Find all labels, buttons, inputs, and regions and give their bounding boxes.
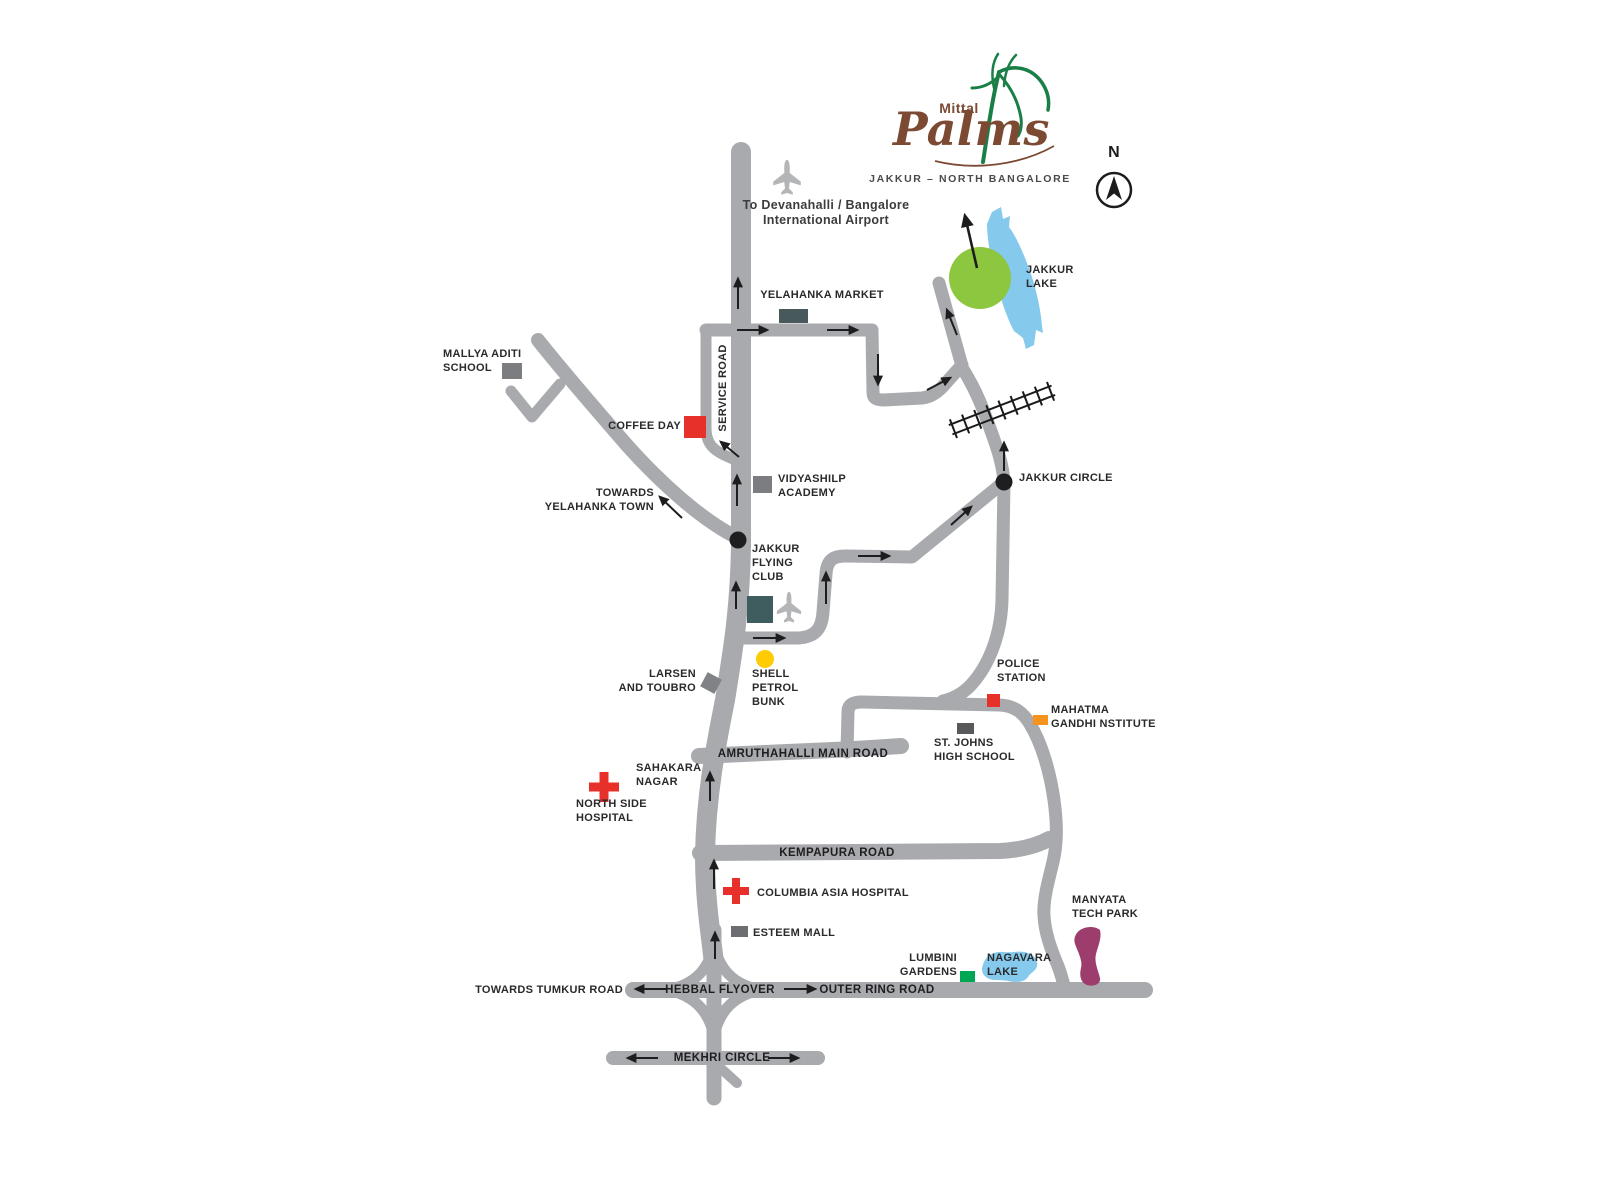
road-school-spur bbox=[511, 384, 560, 417]
flying-club-plane-icon bbox=[777, 592, 801, 623]
label-st-johns: ST. JOHNS HIGH SCHOOL bbox=[934, 736, 1015, 764]
label-lumbini-gardens: LUMBINI GARDENS bbox=[900, 951, 957, 979]
road-main-north bbox=[705, 152, 741, 965]
vidyashilp-academy-marker bbox=[753, 476, 772, 493]
airport-plane-icon bbox=[773, 160, 801, 195]
label-towards-yelahanka: TOWARDS YELAHANKA TOWN bbox=[545, 486, 654, 514]
map-graphics bbox=[0, 0, 1600, 1200]
police-station-marker bbox=[987, 694, 1000, 707]
map-canvas: Mittal Palms JAKKUR – NORTH BANGALORE N … bbox=[0, 0, 1600, 1200]
label-police-station: POLICE STATION bbox=[997, 657, 1046, 685]
lumbini-gardens-marker bbox=[960, 971, 975, 982]
label-manyata-tech-park: MANYATA TECH PARK bbox=[1072, 893, 1138, 921]
coffee-day-marker bbox=[684, 416, 706, 438]
label-mahatma-gandhi: MAHATMA GANDHI NSTITUTE bbox=[1051, 703, 1156, 731]
label-hebbal-flyover: HEBBAL FLYOVER bbox=[665, 983, 775, 997]
label-esteem-mall: ESTEEM MALL bbox=[753, 926, 835, 940]
project-site-circle bbox=[949, 247, 1011, 309]
label-larsen-toubro: LARSEN AND TOUBRO bbox=[619, 667, 696, 695]
logo-script-text: Palms bbox=[893, 106, 1050, 152]
jakkur-circle-dot bbox=[996, 474, 1013, 491]
railway-crossing-icon bbox=[947, 381, 1057, 439]
label-coffee-day: COFFEE DAY bbox=[608, 419, 681, 433]
label-shell-petrol-bunk: SHELL PETROL BUNK bbox=[752, 667, 798, 709]
label-nagavara-lake: NAGAVARA LAKE bbox=[987, 951, 1051, 979]
label-jakkur-flying-club: JAKKUR FLYING CLUB bbox=[752, 542, 800, 584]
label-vidyashilp-academy: VIDYASHILP ACADEMY bbox=[778, 472, 846, 500]
compass-icon bbox=[1097, 173, 1131, 207]
yelahanka-market-marker bbox=[779, 309, 808, 323]
label-amruthahalli-road: AMRUTHAHALLI MAIN ROAD bbox=[718, 747, 888, 761]
manyata-tech-park-shape bbox=[1074, 927, 1100, 986]
esteem-mall-marker bbox=[731, 926, 748, 937]
label-outer-ring-road: OUTER RING ROAD bbox=[819, 983, 934, 997]
label-jakkur-lake: JAKKUR LAKE bbox=[1026, 263, 1074, 291]
logo-tagline: JAKKUR – NORTH BANGALORE bbox=[869, 172, 1071, 186]
label-yelahanka-market: YELAHANKA MARKET bbox=[760, 288, 884, 302]
label-mallya-aditi-school: MALLYA ADITI SCHOOL bbox=[443, 347, 521, 375]
label-north-side-hospital: NORTH SIDE HOSPITAL bbox=[576, 797, 647, 825]
compass-north-label: N bbox=[1108, 146, 1120, 160]
columbia-asia-hospital-cross-icon bbox=[723, 878, 749, 904]
label-kempapura-road: KEMPAPURA ROAD bbox=[779, 846, 895, 860]
mahatma-gandhi-marker bbox=[1033, 715, 1048, 725]
road-circle-south bbox=[943, 483, 1004, 701]
st-johns-marker bbox=[957, 723, 974, 734]
label-airport-direction: To Devanahalli / Bangalore International… bbox=[743, 198, 910, 228]
label-towards-tumkur: TOWARDS TUMKUR ROAD bbox=[475, 983, 623, 997]
label-mekhri-circle: MEKHRI CIRCLE bbox=[674, 1051, 771, 1065]
label-sahakara-nagar: SAHAKARA NAGAR bbox=[636, 761, 701, 789]
jakkur-flying-club-marker bbox=[747, 596, 773, 623]
shell-petrol-marker bbox=[756, 650, 774, 668]
jakkur-flying-club-junction-dot bbox=[730, 532, 747, 549]
road-to-jakkur-circle bbox=[961, 366, 1004, 483]
label-service-road: SERVICE ROAD bbox=[716, 344, 730, 431]
label-jakkur-circle: JAKKUR CIRCLE bbox=[1019, 471, 1113, 485]
label-columbia-asia: COLUMBIA ASIA HOSPITAL bbox=[757, 886, 909, 900]
